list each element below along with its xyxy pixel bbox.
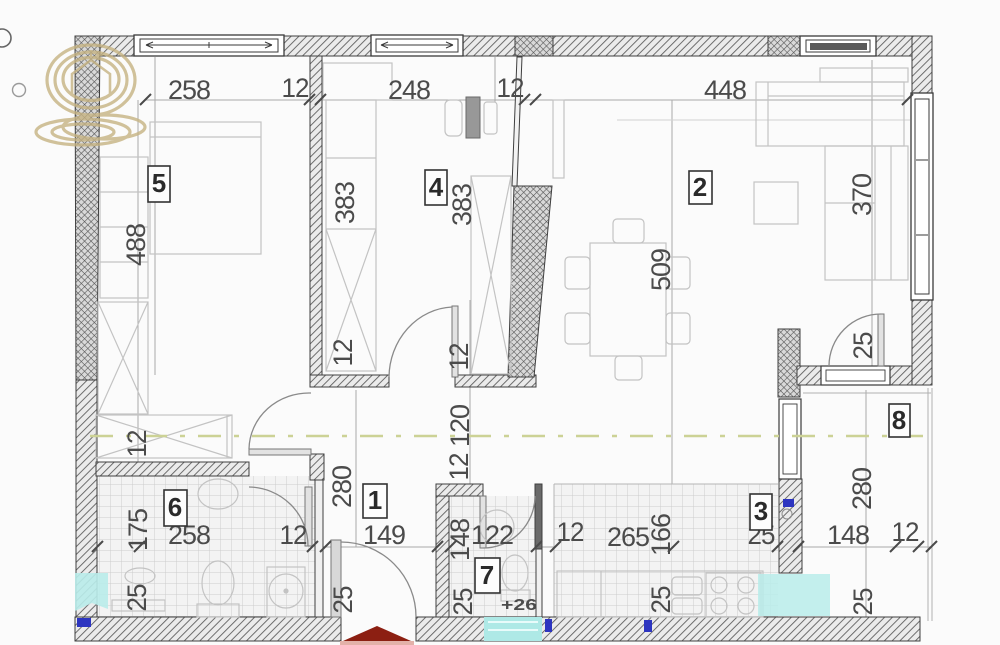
svg-text:25: 25 bbox=[848, 589, 878, 616]
svg-text:149: 149 bbox=[363, 520, 405, 550]
svg-text:280: 280 bbox=[847, 468, 877, 510]
svg-text:+26: +26 bbox=[501, 597, 537, 614]
svg-text:148: 148 bbox=[827, 520, 869, 550]
svg-text:509: 509 bbox=[646, 249, 676, 291]
svg-text:2: 2 bbox=[693, 172, 707, 202]
svg-text:1: 1 bbox=[368, 485, 382, 515]
svg-text:12: 12 bbox=[282, 73, 309, 103]
svg-text:3: 3 bbox=[754, 496, 768, 526]
svg-text:280: 280 bbox=[327, 466, 357, 508]
svg-text:25: 25 bbox=[122, 585, 152, 612]
svg-text:25: 25 bbox=[848, 333, 878, 360]
svg-text:12: 12 bbox=[892, 517, 919, 547]
svg-text:12: 12 bbox=[444, 454, 474, 481]
svg-text:12: 12 bbox=[497, 73, 524, 103]
svg-text:4: 4 bbox=[429, 172, 444, 202]
svg-text:12: 12 bbox=[328, 340, 358, 367]
svg-text:5: 5 bbox=[152, 168, 166, 198]
svg-text:25: 25 bbox=[448, 589, 478, 616]
svg-text:12: 12 bbox=[122, 431, 152, 458]
svg-text:8: 8 bbox=[892, 405, 906, 435]
svg-text:25: 25 bbox=[646, 587, 676, 614]
svg-text:12: 12 bbox=[280, 520, 307, 550]
svg-text:448: 448 bbox=[704, 75, 746, 105]
svg-text:120: 120 bbox=[445, 405, 475, 447]
svg-text:25: 25 bbox=[328, 587, 358, 614]
svg-text:383: 383 bbox=[330, 182, 360, 224]
svg-text:12: 12 bbox=[444, 344, 474, 371]
svg-text:166: 166 bbox=[646, 514, 676, 556]
svg-text:6: 6 bbox=[168, 492, 182, 522]
svg-text:383: 383 bbox=[447, 184, 477, 226]
svg-text:258: 258 bbox=[168, 75, 210, 105]
svg-text:148: 148 bbox=[445, 519, 475, 561]
svg-text:488: 488 bbox=[121, 224, 151, 266]
svg-text:175: 175 bbox=[123, 509, 153, 551]
svg-text:12: 12 bbox=[557, 517, 584, 547]
svg-text:122: 122 bbox=[471, 520, 513, 550]
svg-text:7: 7 bbox=[480, 560, 494, 590]
svg-text:265: 265 bbox=[607, 522, 649, 552]
svg-text:248: 248 bbox=[388, 75, 430, 105]
svg-text:370: 370 bbox=[847, 174, 877, 216]
